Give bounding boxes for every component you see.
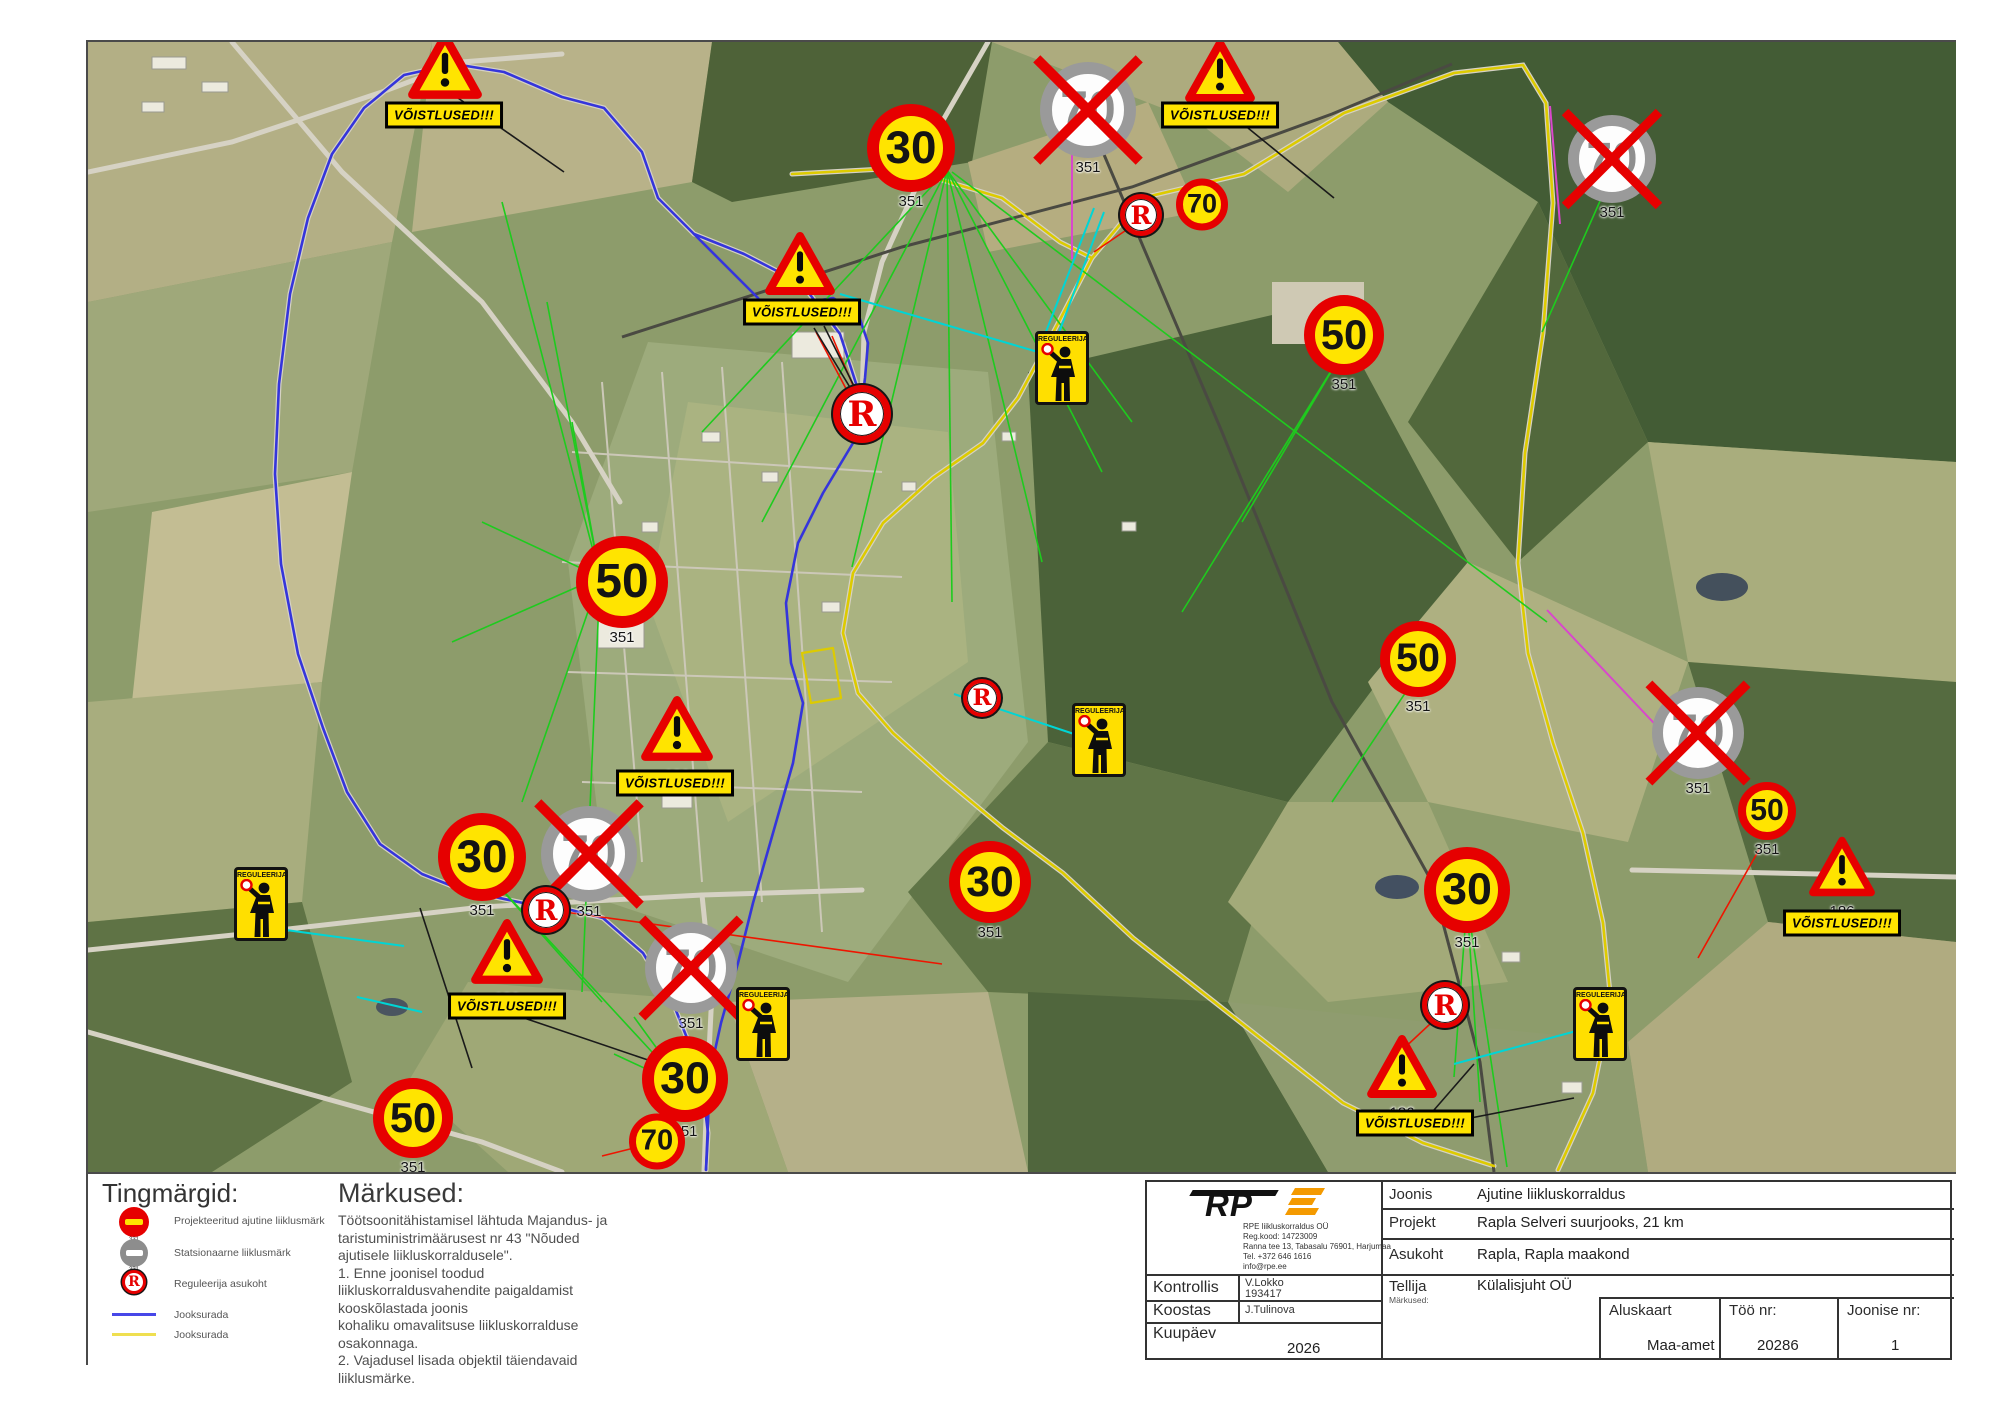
sign-code: 351	[1380, 698, 1456, 715]
traffic-controller-icon	[1075, 715, 1123, 773]
legend-item-label: Projekteeritud ajutine liiklusmärk	[174, 1215, 325, 1227]
speed-sign-50: 50351	[373, 1078, 453, 1172]
traffic-controller-icon	[1038, 343, 1086, 401]
notes-line: kooskõlastada joonis	[338, 1300, 678, 1318]
rpe-logo-text: RP	[1205, 1186, 1253, 1224]
bottom-panel: Tingmärgid: 331Projekteeritud ajutine li…	[88, 1172, 1956, 1365]
sign-code: 351	[576, 629, 668, 646]
competition-banner: VÕISTLUSED!!!	[1783, 910, 1901, 937]
notes-line: ajutisele liikluskorraldusele".	[338, 1247, 678, 1265]
legend-item-label: Jooksurada	[174, 1329, 228, 1341]
speed-sign-30: 30351	[949, 841, 1031, 941]
speed-limit-sign-30: 30	[1424, 847, 1510, 933]
warning-triangle-icon	[641, 695, 713, 761]
legend: Tingmärgid: 331Projekteeritud ajutine li…	[102, 1178, 342, 1209]
notes-title: Märkused:	[338, 1178, 678, 1209]
sign-code: 351	[949, 924, 1031, 941]
title-block: RP RPE liikluskorraldus OÜ Reg.kood: 147…	[1145, 1180, 1952, 1360]
joonis-label: Joonis	[1389, 1186, 1432, 1203]
kontrollis-value2: 193417	[1245, 1288, 1282, 1300]
kuupaev-value: 2026	[1287, 1340, 1320, 1357]
too-nr-value: 20286	[1757, 1337, 1799, 1354]
tellija-label: Tellija	[1389, 1278, 1427, 1295]
notes-line: taristuministrimäärusest nr 43 "Nõuded	[338, 1230, 678, 1248]
company-info: RPE liikluskorraldus OÜ Reg.kood: 147230…	[1243, 1222, 1391, 1272]
regulator-sign: REGULEERIJA	[234, 867, 288, 941]
regulator-sign-title: REGULEERIJA	[1075, 708, 1123, 715]
joonise-nr-label: Joonise nr:	[1847, 1302, 1920, 1319]
speed-sign-50: 50351	[576, 536, 668, 646]
projekt-label: Projekt	[1389, 1214, 1436, 1231]
line-yellow-icon	[106, 1321, 162, 1336]
drawing-frame: 3035130351303513035130351503515035150351…	[86, 40, 1956, 1365]
notes-line: 2. Vajadusel lisada objektil täiendavaid	[338, 1352, 678, 1370]
aerial-map: 3035130351303513035130351503515035150351…	[88, 42, 1956, 1172]
company-name: RPE liikluskorraldus OÜ	[1243, 1222, 1391, 1232]
sign-code: 351	[438, 902, 526, 919]
temp-sign-icon: 331	[106, 1207, 162, 1243]
red-cross-icon	[1561, 108, 1663, 210]
notes-line: liiklusmärke.	[338, 1370, 678, 1388]
regulator-sign-title: REGULEERIJA	[1576, 992, 1624, 999]
traffic-controller-icon	[1576, 999, 1624, 1057]
too-nr-label: Töö nr:	[1729, 1302, 1777, 1319]
speed-sign-50: 50351	[1380, 621, 1456, 715]
crossed-speed-sign-70: 70351	[645, 922, 737, 1032]
crossed-speed-sign-70: 70351	[1040, 62, 1136, 176]
regulator-sign: REGULEERIJA	[1573, 987, 1627, 1061]
speed-limit-sign-50: 50	[1738, 782, 1796, 840]
sign-code: 351	[867, 193, 955, 210]
crossed-speed-sign-70: 70351	[1568, 115, 1656, 221]
joonis-value: Ajutine liikluskorraldus	[1477, 1186, 1625, 1203]
legend-title: Tingmärgid:	[102, 1178, 342, 1209]
tellija-value: Külalisjuht OÜ	[1477, 1277, 1572, 1294]
notes-body: Töötsoonitähistamisel lähtuda Majandus- …	[338, 1212, 678, 1387]
speed-limit-sign-30: 30	[642, 1036, 728, 1122]
speed-limit-sign-30: 30	[438, 813, 526, 901]
speed-limit-sign-70: 70	[1176, 179, 1228, 231]
regulator-sign-title: REGULEERIJA	[739, 992, 787, 999]
regulator-location-point: R	[1422, 982, 1468, 1028]
koostas-value: J.Tulinova	[1245, 1304, 1295, 1316]
rpe-logo-ebar1	[1291, 1188, 1325, 1195]
red-cross-icon	[1032, 54, 1143, 165]
company-reg: Reg.kood: 14723009	[1243, 1232, 1391, 1242]
warning-sign: 186	[1809, 836, 1875, 920]
regulator-sign: REGULEERIJA	[1072, 703, 1126, 777]
speed-sign-50: 50351	[1304, 295, 1384, 393]
regulator-location-point: R	[963, 679, 1001, 717]
traffic-controller-icon	[739, 999, 787, 1057]
stationary-sign-icon: 331	[106, 1239, 162, 1273]
sign-code: 351	[373, 1159, 453, 1172]
sign-code: 351	[1738, 841, 1796, 858]
sign-code: 351	[1424, 934, 1510, 951]
line-blue-icon	[106, 1301, 162, 1316]
speed-limit-sign-30: 30	[949, 841, 1031, 923]
speed-sign-70: 70	[629, 1114, 685, 1171]
markused-label: Märkused:	[1389, 1295, 1429, 1305]
rpe-logo-ebar2	[1288, 1198, 1316, 1205]
warning-triangle-icon	[1185, 42, 1255, 103]
warning-triangle-icon	[1809, 836, 1875, 897]
competition-banner: VÕISTLUSED!!!	[616, 770, 734, 797]
company-tel: Tel. +372 646 1616	[1243, 1252, 1391, 1262]
page: 3035130351303513035130351503515035150351…	[0, 0, 2000, 1414]
regulator-location-point: R	[1120, 194, 1162, 236]
notes-line: kohaliku omavalitsuse liikluskorralduse	[338, 1317, 678, 1335]
competition-banner: VÕISTLUSED!!!	[448, 993, 566, 1020]
joonise-nr-value: 1	[1891, 1337, 1899, 1354]
kuupaev-label: Kuupäev	[1153, 1325, 1216, 1343]
rpe-logo: RP	[1205, 1186, 1355, 1222]
legend-item: 331Statsionaarne liiklusmärk	[102, 1239, 342, 1269]
crossed-speed-sign-70: 70351	[1652, 687, 1744, 797]
regulator-location-point: R	[833, 385, 891, 443]
warning-triangle-icon	[408, 42, 482, 100]
red-cross-icon	[638, 915, 745, 1022]
warning-triangle-icon	[1367, 1034, 1437, 1098]
regulator-sign: REGULEERIJA	[1035, 331, 1089, 405]
regulator-point-icon: R	[106, 1270, 162, 1294]
competition-banner: VÕISTLUSED!!!	[385, 102, 503, 129]
company-email: info@rpe.ee	[1243, 1262, 1391, 1272]
legend-item: 331Projekteeritud ajutine liiklusmärk	[102, 1207, 342, 1237]
projekt-value: Rapla Selveri suurjooks, 21 km	[1477, 1214, 1684, 1231]
notes-line: liikluskorraldusvahendite paigaldamist	[338, 1282, 678, 1300]
speed-sign-70: 70	[1176, 179, 1228, 232]
speed-limit-sign-50: 50	[1380, 621, 1456, 697]
speed-sign-30: 30351	[438, 813, 526, 919]
warning-triangle-icon	[765, 231, 835, 295]
competition-banner: VÕISTLUSED!!!	[1356, 1110, 1474, 1137]
legend-item-label: Jooksurada	[174, 1309, 228, 1321]
legend-item: RReguleerija asukoht	[102, 1270, 342, 1300]
legend-item: Jooksurada	[102, 1321, 342, 1351]
aluskaart-label: Aluskaart	[1609, 1302, 1672, 1319]
legend-item-label: Reguleerija asukoht	[174, 1278, 267, 1290]
notes-line: Töötsoonitähistamisel lähtuda Majandus- …	[338, 1212, 678, 1230]
regulator-location-point: R	[523, 887, 569, 933]
speed-limit-sign-30: 30	[867, 104, 955, 192]
traffic-signs-layer: 3035130351303513035130351503515035150351…	[88, 42, 1956, 1172]
speed-sign-50: 50351	[1738, 782, 1796, 858]
legend-item-label: Statsionaarne liiklusmärk	[174, 1247, 291, 1259]
speed-sign-30: 30351	[1424, 847, 1510, 951]
speed-limit-sign-50: 50	[576, 536, 668, 628]
competition-banner: VÕISTLUSED!!!	[743, 299, 861, 326]
kontrollis-label: Kontrollis	[1153, 1279, 1219, 1297]
regulator-sign-title: REGULEERIJA	[237, 872, 285, 879]
aluskaart-value: Maa-amet	[1647, 1337, 1715, 1354]
notes: Märkused: Töötsoonitähistamisel lähtuda …	[338, 1178, 678, 1387]
red-cross-icon	[1645, 680, 1752, 787]
company-address: Ranna tee 13, Tabasalu 76901, Harjumaa	[1243, 1242, 1391, 1252]
sign-code: 351	[1304, 376, 1384, 393]
rpe-logo-ebar3	[1285, 1208, 1319, 1215]
speed-limit-sign-50: 50	[1304, 295, 1384, 375]
asukoht-label: Asukoht	[1389, 1246, 1443, 1263]
regulator-sign: REGULEERIJA	[736, 987, 790, 1061]
traffic-controller-icon	[237, 879, 285, 937]
speed-limit-sign-50: 50	[373, 1078, 453, 1158]
asukoht-value: Rapla, Rapla maakond	[1477, 1246, 1630, 1263]
speed-sign-30: 30351	[867, 104, 955, 210]
competition-banner: VÕISTLUSED!!!	[1161, 102, 1279, 129]
regulator-sign-title: REGULEERIJA	[1038, 336, 1086, 343]
notes-line: osakonnaga.	[338, 1335, 678, 1353]
notes-line: 1. Enne joonisel toodud	[338, 1265, 678, 1283]
speed-limit-sign-70: 70	[629, 1114, 685, 1170]
koostas-label: Koostas	[1153, 1302, 1211, 1320]
